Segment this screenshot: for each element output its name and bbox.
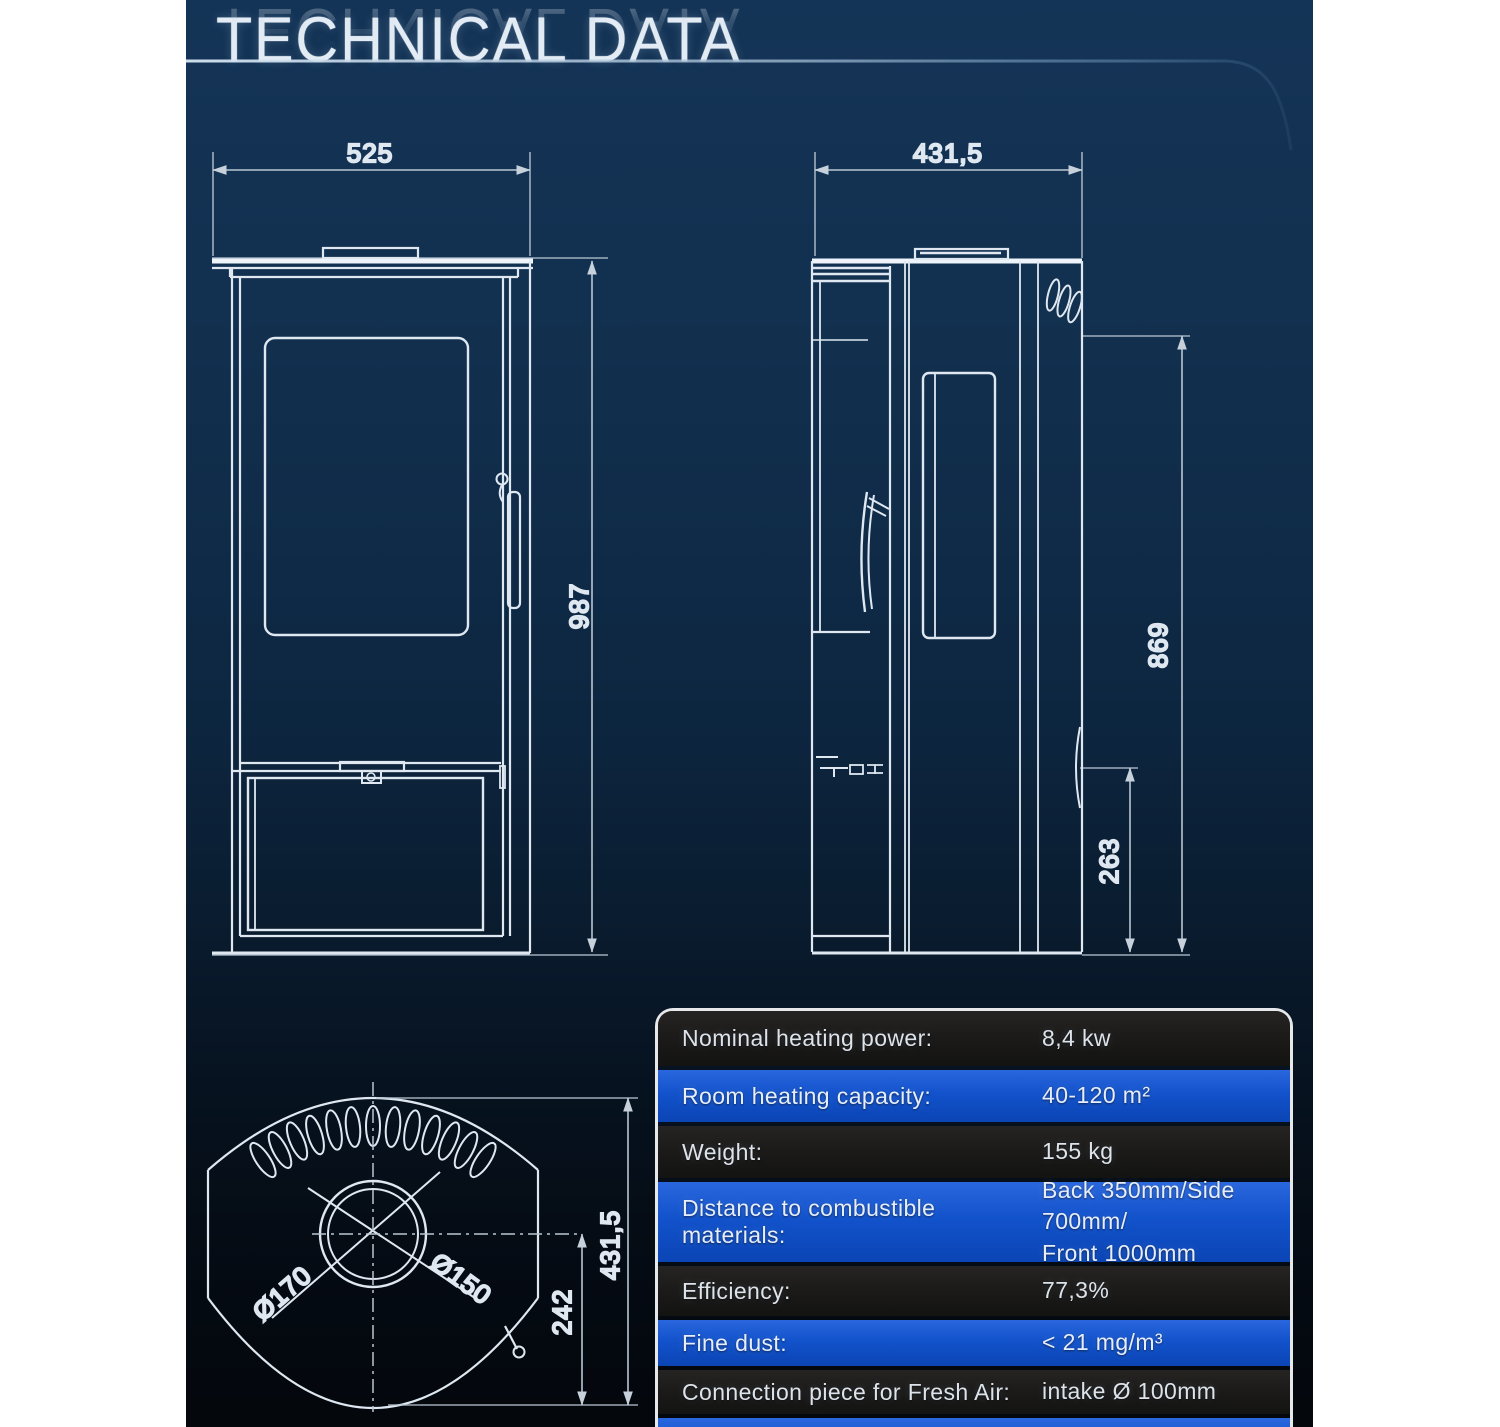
- row-value: 40-120 m²: [1042, 1080, 1290, 1111]
- row-label: Room heating capacity:: [658, 1083, 1042, 1110]
- side-base-height-dim: 263: [1094, 838, 1124, 884]
- datasheet-page: TECHNICAL DATA TECHNICAL DATA: [186, 0, 1313, 1427]
- table-row: Distance to combustible materials: Back …: [658, 1182, 1290, 1262]
- row-label: Nominal heating power:: [658, 1025, 1042, 1052]
- front-width-dim: 525: [347, 138, 393, 168]
- row-value: < 21 mg/m³: [1042, 1327, 1290, 1358]
- row-value: Back 350mm/Side 700mm/Front 1000mm: [1042, 1175, 1290, 1268]
- table-row: Efficiency: 77,3%: [658, 1266, 1290, 1316]
- table-row: Weight: 155 kg: [658, 1126, 1290, 1178]
- row-value: intake Ø 100mm: [1042, 1376, 1290, 1407]
- top-offset-dim: 242: [547, 1289, 577, 1335]
- front-view-drawing: 525 987: [212, 138, 608, 955]
- side-height-dim: 869: [1143, 622, 1173, 668]
- table-row: Room heating capacity: 40-120 m²: [658, 1070, 1290, 1122]
- row-value: 77,3%: [1042, 1275, 1290, 1306]
- table-row: Nominal heating power: 8,4 kw: [658, 1011, 1290, 1066]
- side-view-drawing: 431,5 869 263: [812, 138, 1190, 955]
- table-row: Connection piece for Fresh Air: intake Ø…: [658, 1370, 1290, 1414]
- table-row: [658, 1418, 1290, 1427]
- table-row: Fine dust: < 21 mg/m³: [658, 1320, 1290, 1366]
- row-value: 155 kg: [1042, 1136, 1290, 1167]
- front-height-dim: 987: [564, 583, 594, 629]
- row-label: Distance to combustible materials:: [658, 1195, 1042, 1249]
- row-value: 8,4 kw: [1042, 1023, 1290, 1054]
- row-label: Weight:: [658, 1139, 1042, 1166]
- flue-outer-dim: Ø170: [247, 1260, 318, 1327]
- row-label: Efficiency:: [658, 1278, 1042, 1305]
- spec-table: Nominal heating power: 8,4 kw Room heati…: [655, 1008, 1293, 1427]
- top-view-drawing: Ø170 Ø150 431,5 242: [208, 1082, 638, 1412]
- top-depth-dim: 431,5: [595, 1210, 625, 1280]
- side-depth-dim: 431,5: [913, 138, 983, 168]
- row-label: Connection piece for Fresh Air:: [658, 1379, 1042, 1406]
- row-label: Fine dust:: [658, 1330, 1042, 1357]
- side-vent-holes: [1044, 278, 1084, 323]
- flue-inner-dim: Ø150: [425, 1247, 497, 1311]
